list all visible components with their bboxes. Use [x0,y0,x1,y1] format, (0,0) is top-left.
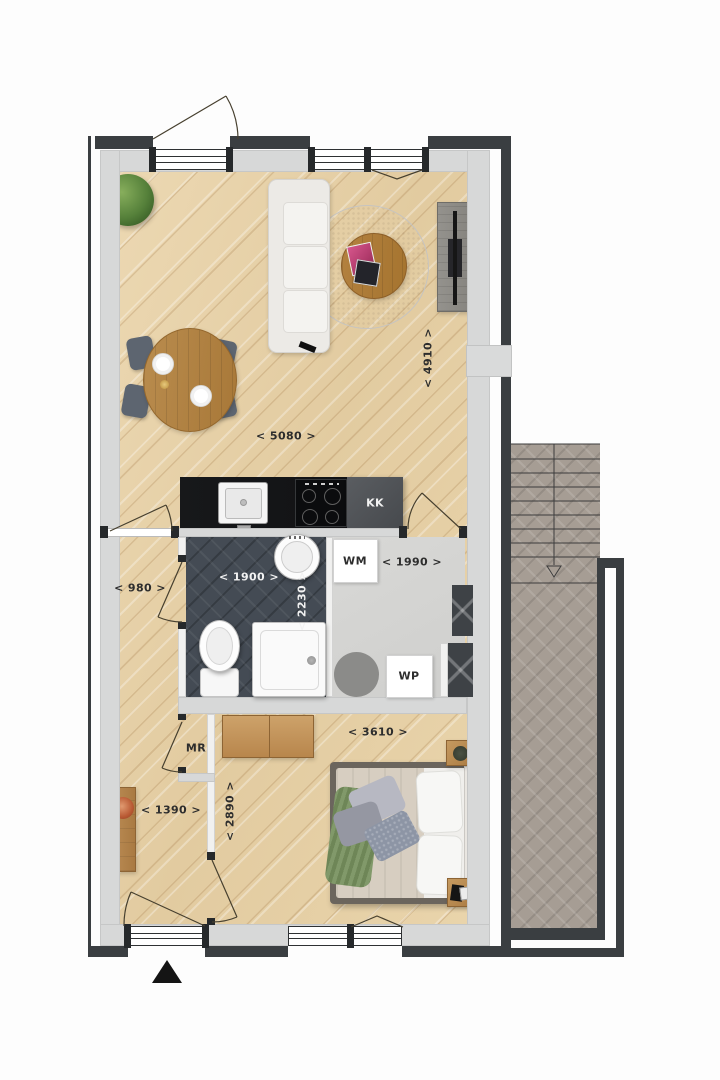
window-mullion [308,147,315,172]
utility-step-wall [440,643,448,697]
wall-bathroom-left [178,622,186,697]
dim-bedroom-width: < 3610 > [348,726,408,739]
installation-cabinet [452,585,473,636]
toilet-tank [200,668,239,697]
stair-wall-bottom [511,928,597,940]
dim-living-depth: < 4910 > [422,328,435,388]
label-meter-cupboard: MR [186,742,206,755]
sink-drain [240,499,247,506]
sink-tap-dots [289,536,305,539]
wall-bath-utility [326,537,333,697]
outer-wall-bottom [511,948,624,957]
wall-connector-block [466,345,512,377]
candle-holder [160,380,169,389]
wall-mr-right [207,714,215,858]
shower-tray [252,622,326,697]
dim-utility-width: < 1990 > [382,556,442,569]
cooktop [295,479,347,527]
window-frame [367,149,428,170]
stairwell-floor [511,444,600,930]
sofa-cushion [283,202,328,245]
plate [190,385,212,407]
door-post [100,526,108,538]
stair-wall-right [597,565,605,940]
sofa [268,179,330,353]
balcony-door-frame [153,149,230,170]
coffee-table [341,233,407,299]
floorplan-canvas: < 5080 > < 4910 > < 980 > < 1900 > < 223… [0,0,720,1080]
door-post [459,526,467,538]
wall-right [501,136,511,957]
wall-bottom [402,946,511,957]
balcony-door-swing [153,96,238,139]
dim-hall2-width: < 1390 > [141,804,201,817]
wall-right-inner [467,150,490,946]
door-post [202,924,209,948]
burner [302,509,318,525]
wall-bottom [88,946,128,957]
dresser-divider [269,716,270,757]
dim-bath-depth: < 2230 > [296,571,309,631]
door-post [178,555,186,562]
label-washing-machine: WM [343,555,367,568]
label-kitchen-unit: KK [366,497,384,510]
sofa-cushion [283,246,328,289]
shower-drain [307,656,316,665]
sink-bowl [281,541,313,573]
hall-door-threshold [108,528,171,537]
nightstand-plant [453,746,468,761]
bedroom-window-frame [351,926,402,946]
dining-table [143,328,237,432]
door-post [178,714,186,720]
plate [152,353,174,375]
wall-bedroom-top [178,697,467,714]
wall-left-inner [100,150,120,946]
dim-living-width: < 5080 > [256,430,316,443]
cooktop-controls [305,483,339,485]
north-arrow-icon [152,960,182,983]
entrance-door-frame [128,926,205,946]
wall-mr-bottom [178,773,215,782]
label-heat-pump: WP [399,670,420,683]
dim-hall-width: < 980 > [114,582,166,595]
installation-cabinet [448,643,473,697]
window-mullion [422,147,429,172]
burner [324,488,341,505]
window-mullion [347,924,354,948]
toilet-seat [206,627,233,665]
door-post [207,852,215,860]
outer-wall-right [616,558,624,957]
sofa-cushion [283,290,328,333]
door-post [226,147,233,172]
door-post [149,147,156,172]
kitchen-sink [218,482,268,524]
dim-bath-width: < 1900 > [219,571,279,584]
door-post [124,924,131,948]
door-post [178,767,186,773]
wall-bottom [205,946,288,957]
toilet [199,620,240,698]
dresser [222,715,314,758]
tv-soundbar [453,211,457,305]
wall-top [95,136,153,149]
wall-top [428,136,511,149]
door-post [399,526,407,538]
wall-left-outer [88,136,91,957]
window-mullion [364,147,371,172]
remote-control [298,341,316,353]
door-post [178,622,186,629]
wall-top [230,136,310,149]
burner [302,489,316,503]
burner [325,510,339,524]
magazine [353,259,380,286]
dim-bedroom-depth: < 2890 > [224,781,237,841]
pillow [415,770,463,834]
bedroom-window-frame [288,926,351,946]
vent-unit [334,652,379,697]
